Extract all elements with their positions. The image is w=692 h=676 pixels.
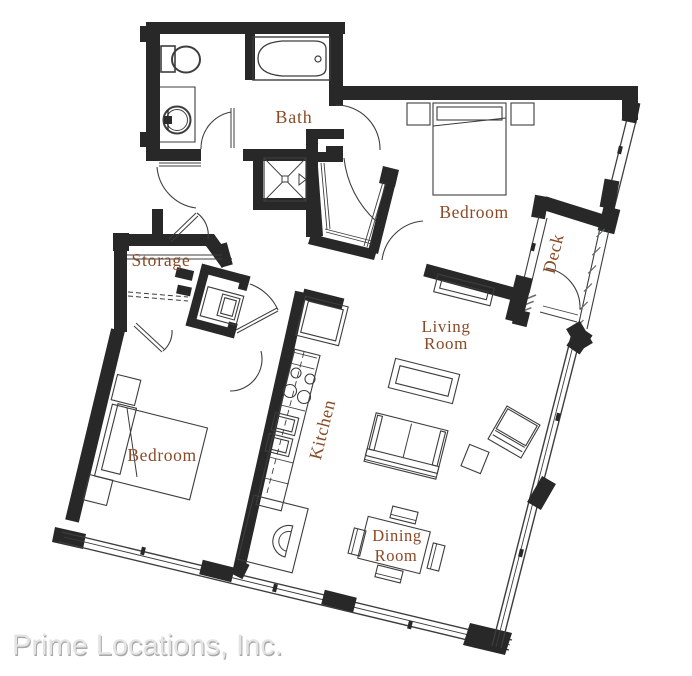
svg-text:Bedroom: Bedroom bbox=[439, 202, 508, 222]
svg-text:Dining: Dining bbox=[372, 526, 421, 545]
svg-text:Room: Room bbox=[375, 546, 418, 565]
svg-text:Storage: Storage bbox=[131, 250, 190, 270]
svg-text:Room: Room bbox=[424, 334, 468, 353]
svg-text:Bath: Bath bbox=[275, 107, 312, 127]
svg-text:Prime Locations, Inc.: Prime Locations, Inc. bbox=[12, 630, 283, 662]
svg-text:Bedroom: Bedroom bbox=[127, 445, 196, 465]
